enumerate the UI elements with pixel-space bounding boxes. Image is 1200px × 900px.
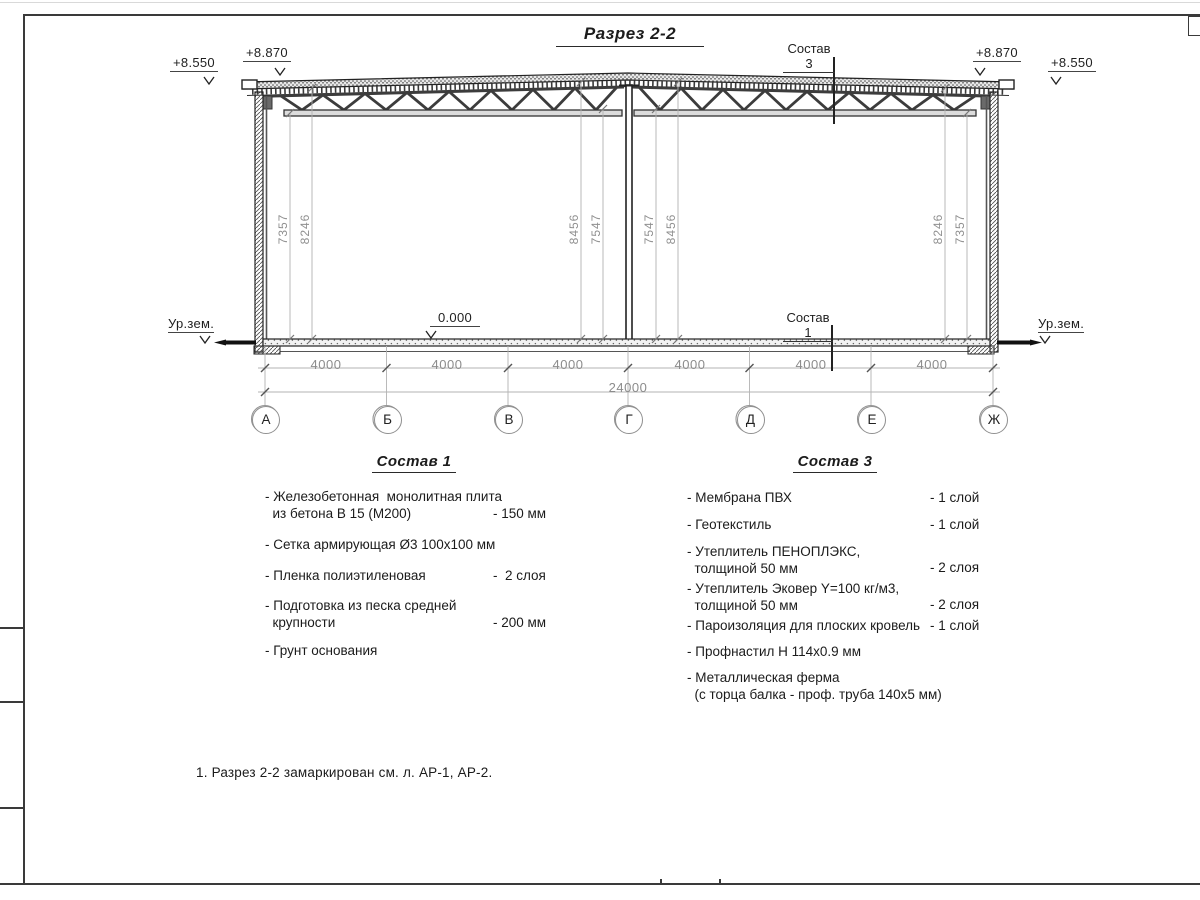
height-dim: 8456 [567, 189, 581, 269]
comp3-item-value: - 2 слоя [930, 597, 979, 614]
comp3-item: - Металлическая ферма (с торца балка - п… [687, 670, 942, 703]
foundation-left [254, 346, 280, 354]
elevation-right-wall: +8.870 [973, 45, 1021, 62]
comp3-item: - Утеплитель Эковер Y=100 кг/м3, толщино… [687, 581, 899, 614]
wall-right [990, 92, 998, 352]
comp3-item: - Мембрана ПВХ [687, 490, 792, 507]
comp1-item-value: - 200 мм [493, 615, 546, 632]
sheet-note: 1. Разрез 2-2 замаркирован см. л. АР-1, … [196, 765, 492, 780]
elevation-left-outer: +8.550 [170, 55, 218, 72]
span-dim: 4000 [538, 357, 598, 372]
comp1-item: - Подготовка из песка средней крупности [265, 598, 456, 631]
section-drawing [0, 0, 1200, 900]
elevation-right-outer: +8.550 [1048, 55, 1096, 72]
comp3-item: - Пароизоляция для плоских кровель [687, 618, 920, 635]
ground-level-label-right: Ур.зем. [1038, 316, 1084, 333]
foundation-right [968, 346, 994, 354]
span-dim: 4000 [660, 357, 720, 372]
span-dim: 4000 [781, 357, 841, 372]
drawing-sheet: Разрез 2-2 +8.550 +8.870 +8.870 +8.550 У… [0, 0, 1200, 900]
roof-end-cap-left [242, 80, 257, 89]
comp3-item-value: - 1 слой [930, 618, 979, 635]
height-dim: 8246 [298, 189, 312, 269]
floor-slab [263, 339, 990, 346]
axis-bubble: Е [858, 406, 886, 434]
comp1-item-value: - 150 мм [493, 506, 546, 523]
height-dim: 7547 [642, 189, 656, 269]
comp3-item: - Профнастил Н 114х0.9 мм [687, 644, 861, 661]
comp1-item: - Пленка полиэтиленовая [265, 568, 426, 585]
ground-line-right-tip [1030, 340, 1042, 346]
ground-line-left-tip [214, 340, 226, 346]
zero-level-label: 0.000 [430, 310, 480, 327]
drawing-title: Разрез 2-2 [556, 24, 704, 47]
height-dim: 7357 [953, 189, 967, 269]
truss-bearing-right [981, 96, 990, 109]
axis-extension-lines [265, 346, 993, 405]
comp3-item: - Утеплитель ПЕНОПЛЭКС, толщиной 50 мм [687, 544, 860, 577]
center-column [626, 85, 632, 340]
comp1-item: - Сетка армирующая Ø3 100х100 мм [265, 537, 495, 554]
span-dim: 4000 [902, 357, 962, 372]
axis-bubble: Б [374, 406, 402, 434]
roof-end-cap-right [999, 80, 1014, 89]
span-dim: 4000 [417, 357, 477, 372]
truss-bottom-chord-right [634, 110, 976, 116]
height-dim: 8456 [664, 189, 678, 269]
axis-bubble: В [495, 406, 523, 434]
comp3-item-value: - 1 слой [930, 517, 979, 534]
floor-callout-label: Состав 1 [783, 310, 833, 342]
comp1-item-value: - 2 слоя [493, 568, 546, 585]
comp3-heading: Состав 3 [793, 453, 877, 473]
comp1-heading: Состав 1 [372, 453, 456, 473]
truss-bearing-left [263, 96, 272, 109]
axis-bubble: Д [737, 406, 765, 434]
height-dim: 7357 [276, 189, 290, 269]
total-dim: 24000 [598, 380, 658, 395]
comp3-item: - Геотекстиль [687, 517, 771, 534]
elevation-left-wall: +8.870 [243, 45, 291, 62]
comp3-item-value: - 2 слоя [930, 560, 979, 577]
truss-bottom-chord-left [284, 110, 622, 116]
axis-bubble: Г [615, 406, 643, 434]
comp1-item: - Грунт основания [265, 643, 377, 660]
height-dim: 7547 [589, 189, 603, 269]
axis-bubble: А [252, 406, 280, 434]
height-dim: 8246 [931, 189, 945, 269]
wall-left [255, 92, 263, 352]
comp3-item-value: - 1 слой [930, 490, 979, 507]
ground-level-label-left: Ур.зем. [168, 316, 214, 333]
roof-callout-label: Состав 3 [783, 41, 835, 73]
span-dim: 4000 [296, 357, 356, 372]
comp1-item: - Железобетонная монолитная плита из бет… [265, 489, 502, 522]
axis-bubble: Ж [980, 406, 1008, 434]
